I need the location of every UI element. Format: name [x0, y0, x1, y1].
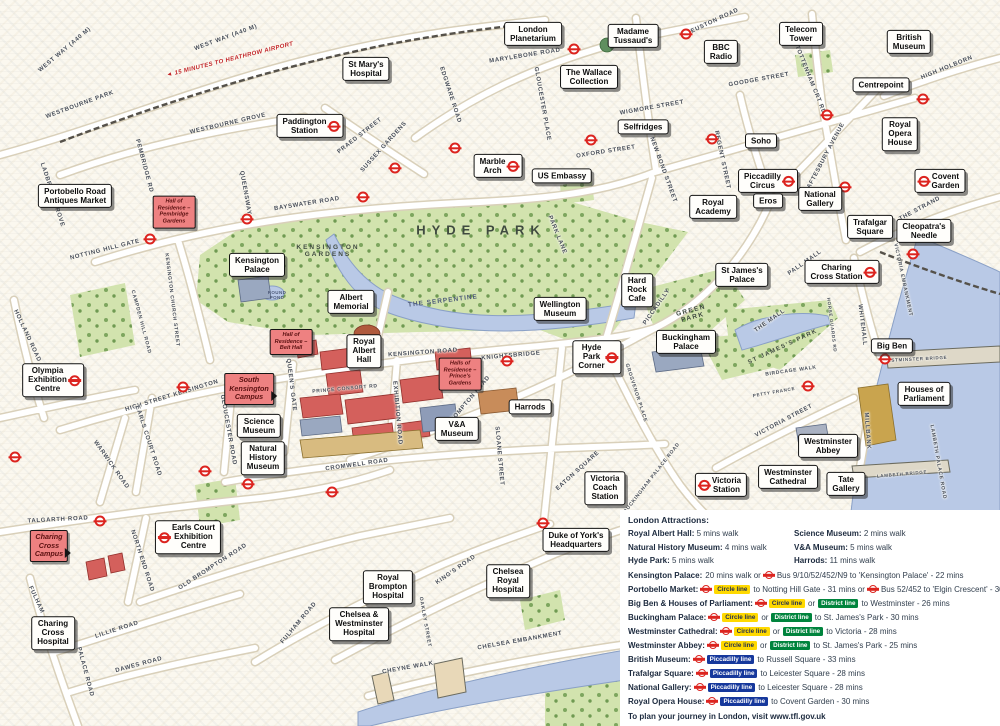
map-label-bbc-radio: BBC Radio	[704, 40, 738, 64]
map-label-piccadilly-circus: Piccadilly Circus	[738, 169, 798, 193]
legend-attraction-name: Buckingham Palace:	[628, 613, 706, 622]
legend-walk-row: Natural History Museum: 4 mins walkV&A M…	[628, 543, 998, 556]
campus-label-hall-of-residence-beit-hall: Hall of Residence – Beit Hall	[270, 329, 313, 355]
map-label-marble-arch: Marble Arch	[474, 154, 523, 178]
map-label-royal-albert-hall: Royal Albert Hall	[346, 334, 381, 368]
map-label-text: Earls Court Exhibition Centre	[172, 523, 215, 550]
map-label-text: Chelsea & Westminster Hospital	[335, 610, 383, 637]
map-label-olympia-exhibition-centre: Olympia Exhibition Centre	[22, 363, 84, 397]
legend-attraction-name: Westminster Abbey:	[628, 641, 705, 650]
map-label-madame-tussaud-s: Madame Tussaud's	[608, 24, 659, 48]
map-label-text: Duke of York's Headquarters	[549, 531, 604, 549]
map-label-royal-brompton-hospital: Royal Brompton Hospital	[363, 570, 413, 604]
legend-attraction-name: Trafalgar Square:	[628, 669, 694, 678]
legend-transit-text: to Victoria - 28 mins	[826, 627, 897, 636]
map-label-text: Harrods	[515, 402, 546, 411]
legend-transit-text: Bus 52/452 to 'Elgin Crescent' - 30 mins	[881, 585, 1000, 594]
map-label-text: Westminster Cathedral	[764, 468, 812, 486]
legend-transit-row: National Gallery:Piccadilly lineto Leice…	[628, 683, 998, 696]
tube-roundel-icon	[390, 163, 401, 174]
map-label-text: Covent Garden	[931, 172, 959, 190]
tube-roundel-icon	[450, 143, 461, 154]
legend-transit-row: Trafalgar Square:Piccadilly lineto Leice…	[628, 669, 998, 682]
map-label-text: Chelsea Royal Hospital	[492, 567, 524, 594]
map-label-text: St Mary's Hospital	[348, 60, 383, 78]
map-label-cleopatra-s-needle: Cleopatra's Needle	[896, 219, 951, 243]
map-label-houses-of-parliament: Houses of Parliament	[898, 382, 951, 406]
map-label-chelsea-royal-hospital: Chelsea Royal Hospital	[486, 564, 530, 598]
map-label-buckingham-palace: Buckingham Palace	[656, 330, 716, 354]
area-label-hyde-park: HYDE PARK	[416, 223, 546, 238]
piccadilly-line-badge: Piccadilly line	[707, 655, 755, 665]
map-label-text: Marble Arch	[480, 157, 506, 175]
map-label-duke-of-york-s-headquarters: Duke of York's Headquarters	[543, 528, 610, 552]
map-label-selfridges: Selfridges	[618, 119, 669, 134]
district-line-badge: District line	[818, 599, 858, 609]
legend-transit-row: Westminster Abbey:Circle lineorDistrict …	[628, 641, 998, 654]
tube-roundel-icon	[200, 466, 211, 477]
map-label-telecom-tower: Telecom Tower	[779, 22, 823, 46]
legend-transit-text: to Russell Square - 33 mins	[757, 655, 855, 664]
map-label-hyde-park-corner: Hyde Park Corner	[572, 340, 621, 374]
legend-walk-item: Natural History Museum: 4 mins walk	[628, 543, 767, 552]
map-label-text: Royal Brompton Hospital	[369, 573, 407, 600]
attractions-legend: London Attractions: Royal Albert Hall: 5…	[620, 510, 1000, 726]
map-label-st-mary-s-hospital: St Mary's Hospital	[342, 57, 389, 81]
map-label-trafalgar-square: Trafalgar Square	[847, 215, 893, 239]
campus-label-hall-of-residence-pembridge-gard: Hall of Residence – Pembridge Gardens	[153, 196, 196, 229]
legend-attraction-name: Hyde Park:	[628, 556, 672, 565]
map-label-royal-opera-house: Royal Opera House	[882, 117, 918, 151]
legend-transit-text: to Notting Hill Gate - 31 mins or	[753, 585, 865, 594]
map-label-text: Royal Academy	[695, 198, 731, 216]
map-label-london-planetarium: London Planetarium	[504, 22, 562, 46]
map-label-text: Cleopatra's Needle	[902, 222, 945, 240]
campus-label-halls-of-residence-prince-s-gard: Halls of Residence – Prince's Gardens	[439, 358, 482, 391]
map-label-text: Science Museum	[243, 417, 275, 435]
map-label-wellington-museum: Wellington Museum	[534, 297, 587, 321]
campus-label-charing-cross-campus: Charing Cross Campus	[30, 530, 68, 562]
tube-roundel-icon	[243, 479, 254, 490]
legend-attraction-name: Royal Opera House:	[628, 697, 704, 706]
tube-roundel-icon	[607, 352, 618, 363]
map-label-text: Eros	[759, 196, 777, 205]
tube-roundel-icon	[159, 532, 170, 543]
circle-line-badge: Circle line	[734, 627, 770, 637]
map-label-text: Portobello Road Antiques Market	[44, 187, 106, 205]
map-label-chelsea-westminster-hospital: Chelsea & Westminster Hospital	[329, 607, 389, 641]
map-label-national-gallery: National Gallery	[798, 187, 842, 211]
tube-roundel-icon	[708, 697, 716, 705]
map-label-text: V&A Museum	[441, 420, 473, 438]
tube-roundel-icon	[69, 375, 80, 386]
map-label-text: British Museum	[893, 33, 925, 51]
london-illustrated-map: HYDE PARKKENSINGTON GARDENSGREEN PARKST …	[0, 0, 1000, 726]
legend-transit-text: or	[761, 613, 768, 622]
legend-transit-text: to Leicester Square - 28 mins	[760, 669, 865, 678]
map-label-text: Kensington Palace	[235, 256, 279, 274]
legend-attraction-name: Westminster Cathedral:	[628, 627, 718, 636]
tube-roundel-icon	[358, 192, 369, 203]
piccadilly-line-badge: Piccadilly line	[720, 697, 768, 707]
map-label-text: Olympia Exhibition Centre	[28, 366, 67, 393]
piccadilly-line-badge: Piccadilly line	[708, 683, 756, 693]
legend-transit-text: to Leicester Square - 28 mins	[758, 683, 863, 692]
map-label-text: Buckingham Palace	[662, 333, 710, 351]
map-label-earls-court-exhibition-centre: Earls Court Exhibition Centre	[155, 520, 221, 554]
map-label-westminster-cathedral: Westminster Cathedral	[758, 465, 818, 489]
map-label-tate-gallery: Tate Gallery	[826, 472, 865, 496]
tube-roundel-icon	[242, 214, 253, 225]
tube-roundel-icon	[702, 585, 710, 593]
legend-transit-text: Bus 9/10/52/452/N9 to 'Kensington Palace…	[777, 571, 964, 580]
map-label-kensington-palace: Kensington Palace	[229, 253, 285, 277]
tube-roundel-icon	[865, 267, 876, 278]
tube-roundel-icon	[569, 44, 580, 55]
map-label-albert-memorial: Albert Memorial	[327, 290, 374, 314]
map-label-big-ben: Big Ben	[871, 338, 913, 353]
tube-roundel-icon	[822, 110, 833, 121]
map-label-text: The Wallace Collection	[566, 68, 612, 86]
legend-attraction-name: Science Museum:	[794, 529, 864, 538]
legend-footer-text: To plan your journey in London, visit	[628, 712, 770, 721]
map-label-paddington-station: Paddington Station	[277, 114, 344, 138]
legend-walk-row: Royal Albert Hall: 5 mins walkScience Mu…	[628, 529, 998, 542]
district-line-badge: District line	[770, 641, 810, 651]
legend-attraction-name: Portobello Market:	[628, 585, 698, 594]
map-label-text: Madame Tussaud's	[614, 27, 653, 45]
legend-transit-row: Royal Opera House:Piccadilly lineto Cove…	[628, 697, 998, 710]
map-label-v-a-museum: V&A Museum	[435, 417, 479, 441]
tube-roundel-icon	[502, 356, 513, 367]
tube-roundel-icon	[10, 452, 21, 463]
tube-roundel-icon	[765, 571, 773, 579]
tube-roundel-icon	[707, 134, 718, 145]
map-label-text: Natural History Museum	[247, 444, 279, 471]
map-label-text: Soho	[751, 136, 771, 145]
map-label-hard-rock-cafe: Hard Rock Cafe	[621, 273, 653, 307]
legend-attraction-name: Royal Albert Hall:	[628, 529, 697, 538]
map-label-text: US Embassy	[538, 171, 586, 180]
legend-walk-item: Hyde Park: 5 mins walk	[628, 556, 714, 565]
legend-transit-text: or	[760, 641, 767, 650]
tube-roundel-icon	[699, 480, 710, 491]
map-label-text: Selfridges	[624, 122, 663, 131]
legend-walk-item: Royal Albert Hall: 5 mins walk	[628, 529, 738, 538]
tube-roundel-icon	[869, 585, 877, 593]
map-label-text: Houses of Parliament	[904, 385, 945, 403]
map-label-charing-cross-station: Charing Cross Station	[804, 260, 879, 284]
legend-transit-row: British Museum:Piccadilly lineto Russell…	[628, 655, 998, 668]
map-label-the-wallace-collection: The Wallace Collection	[560, 65, 618, 89]
map-label-text: Albert Memorial	[333, 293, 368, 311]
circle-line-badge: Circle line	[722, 613, 758, 623]
map-label-text: Royal Opera House	[888, 120, 912, 147]
legend-attraction-name: National Gallery:	[628, 683, 692, 692]
legend-transit-text: to Westminster - 26 mins	[861, 599, 949, 608]
tfl-website-link[interactable]: www.tfl.gov.uk	[770, 712, 826, 721]
map-label-harrods: Harrods	[509, 399, 552, 414]
map-label-text: Royal Albert Hall	[352, 337, 375, 364]
campus-label-south-kensington-campus: South Kensington Campus	[224, 373, 274, 405]
tube-roundel-icon	[722, 627, 730, 635]
tube-roundel-icon	[908, 249, 919, 260]
legend-transit-text: or	[773, 627, 780, 636]
circle-line-badge: Circle line	[714, 585, 750, 595]
legend-transit-row: Portobello Market:Circle lineto Notting …	[628, 585, 998, 598]
legend-transit-text: to St. James's Park - 25 mins	[813, 641, 917, 650]
map-label-victoria-station: Victoria Station	[695, 473, 747, 497]
legend-transit-text: to Covent Garden - 30 mins	[771, 697, 869, 706]
tube-roundel-icon	[586, 135, 597, 146]
circle-line-badge: Circle line	[721, 641, 757, 651]
map-label-natural-history-museum: Natural History Museum	[241, 441, 285, 475]
map-label-text: National Gallery	[804, 190, 836, 208]
legend-attraction-name: Big Ben & Houses of Parliament:	[628, 599, 753, 608]
tube-roundel-icon	[507, 161, 518, 172]
map-label-text: Telecom Tower	[785, 25, 817, 43]
legend-transit-text: or	[808, 599, 815, 608]
tube-roundel-icon	[329, 121, 340, 132]
map-label-text: BBC Radio	[710, 43, 732, 61]
map-label-text: Charing Cross Hospital	[37, 619, 69, 646]
legend-attraction-name: Kensington Palace:	[628, 571, 702, 580]
tube-roundel-icon	[681, 29, 692, 40]
tube-roundel-icon	[709, 641, 717, 649]
tube-roundel-icon	[95, 516, 106, 527]
map-label-text: Piccadilly Circus	[744, 172, 781, 190]
legend-footer: To plan your journey in London, visit ww…	[628, 712, 826, 721]
legend-transit-row: Big Ben & Houses of Parliament:Circle li…	[628, 599, 998, 612]
tube-roundel-icon	[783, 176, 794, 187]
tube-roundel-icon	[918, 176, 929, 187]
tube-roundel-icon	[178, 382, 189, 393]
map-label-victoria-coach-station: Victoria Coach Station	[584, 471, 625, 505]
tube-roundel-icon	[696, 683, 704, 691]
map-label-westminster-abbey: Westminster Abbey	[798, 434, 858, 458]
district-line-badge: District line	[783, 627, 823, 637]
map-label-british-museum: British Museum	[887, 30, 931, 54]
map-label-eros: Eros	[753, 193, 783, 208]
map-label-text: Centrepoint	[859, 80, 904, 89]
map-label-covent-garden: Covent Garden	[914, 169, 965, 193]
legend-walk-item: Harrods: 11 mins walk	[794, 556, 875, 565]
legend-walk-row: Hyde Park: 5 mins walkHarrods: 11 mins w…	[628, 556, 998, 569]
district-line-badge: District line	[771, 613, 811, 623]
map-label-us-embassy: US Embassy	[532, 168, 592, 183]
tube-roundel-icon	[698, 669, 706, 677]
map-label-text: Wellington Museum	[540, 300, 581, 318]
map-label-text: Paddington Station	[283, 117, 327, 135]
map-label-text: Hyde Park Corner	[578, 343, 604, 370]
map-label-text: Victoria Station	[712, 476, 741, 494]
tube-roundel-icon	[757, 599, 765, 607]
tube-roundel-icon	[710, 613, 718, 621]
map-label-text: Big Ben	[877, 341, 907, 350]
legend-header: London Attractions:	[628, 515, 709, 525]
map-label-portobello-road-antiques-market: Portobello Road Antiques Market	[38, 184, 112, 208]
legend-transit-row: Westminster Cathedral:Circle lineorDistr…	[628, 627, 998, 640]
tube-roundel-icon	[695, 655, 703, 663]
map-label-text: Victoria Coach Station	[590, 474, 619, 501]
map-label-text: Charing Cross Station	[810, 263, 862, 281]
map-label-text: Tate Gallery	[832, 475, 859, 493]
area-label-kensington-gardens: KENSINGTON GARDENS	[296, 244, 359, 258]
tube-roundel-icon	[145, 234, 156, 245]
tube-roundel-icon	[803, 381, 814, 392]
legend-transit-text: 20 mins walk or	[705, 571, 761, 580]
map-label-text: Westminster Abbey	[804, 437, 852, 455]
map-label-centrepoint: Centrepoint	[853, 77, 910, 92]
map-label-royal-academy: Royal Academy	[689, 195, 737, 219]
legend-attraction-name: Harrods:	[794, 556, 830, 565]
legend-walk-item: V&A Museum: 5 mins walk	[794, 543, 892, 552]
legend-transit-row: Kensington Palace:20 mins walk orBus 9/1…	[628, 571, 998, 584]
map-label-text: London Planetarium	[510, 25, 556, 43]
tube-roundel-icon	[880, 354, 891, 365]
legend-walk-item: Science Museum: 2 mins walk	[794, 529, 906, 538]
map-label-st-james-s-palace: St James's Palace	[715, 263, 768, 287]
tube-roundel-icon	[918, 94, 929, 105]
map-label-text: Hard Rock Cafe	[627, 276, 647, 303]
map-label-soho: Soho	[745, 133, 777, 148]
map-label-science-museum: Science Museum	[237, 414, 281, 438]
area-label-round-pond: ROUND POND	[268, 290, 287, 300]
tube-roundel-icon	[327, 487, 338, 498]
legend-attraction-name: Natural History Museum:	[628, 543, 725, 552]
map-label-charing-cross-hospital: Charing Cross Hospital	[31, 616, 75, 650]
legend-transit-row: Buckingham Palace:Circle lineorDistrict …	[628, 613, 998, 626]
piccadilly-line-badge: Piccadilly line	[710, 669, 758, 679]
circle-line-badge: Circle line	[769, 599, 805, 609]
map-label-text: Trafalgar Square	[853, 218, 887, 236]
legend-attraction-name: V&A Museum:	[794, 543, 850, 552]
map-label-text: St James's Palace	[721, 266, 762, 284]
legend-transit-text: to St. James's Park - 30 mins	[815, 613, 919, 622]
legend-attraction-name: British Museum:	[628, 655, 691, 664]
